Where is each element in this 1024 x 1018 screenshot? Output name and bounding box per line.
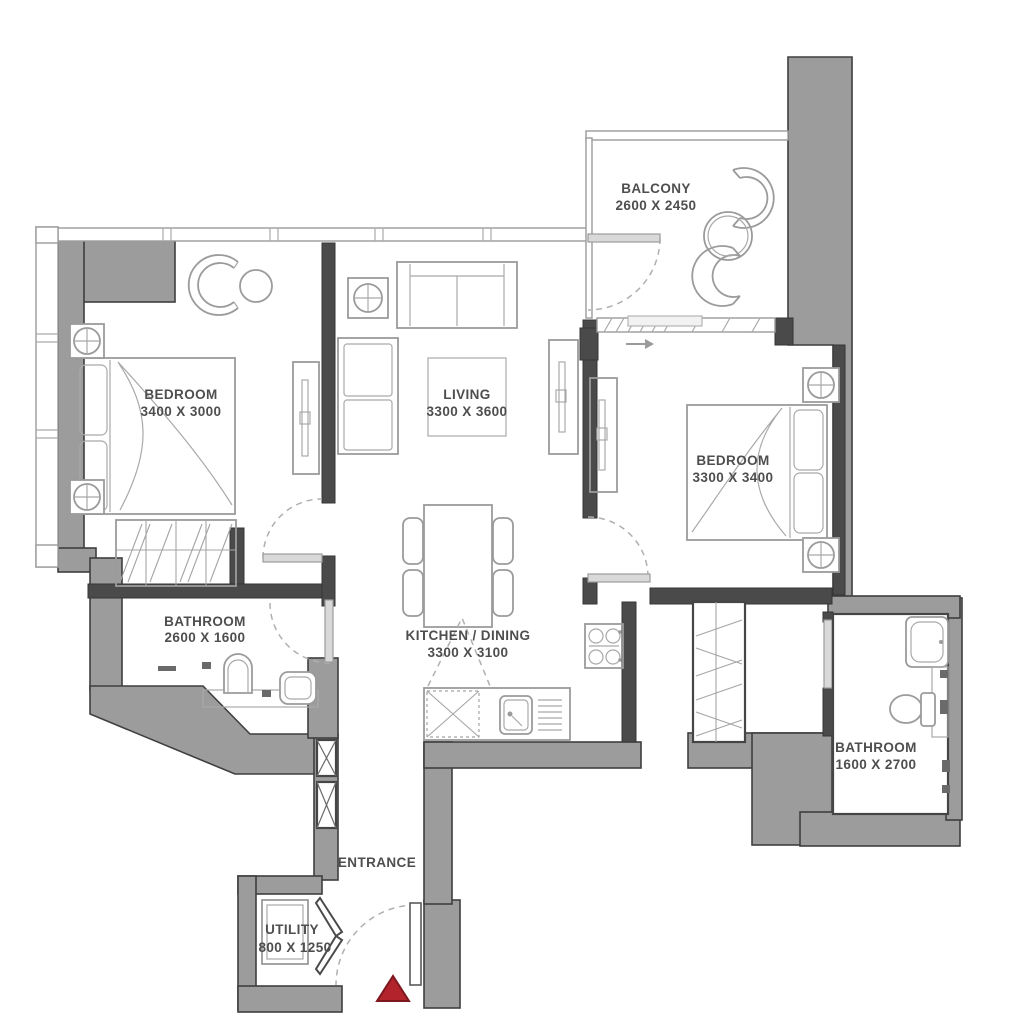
entrance-marker-icon — [377, 976, 409, 1001]
corner-block-ne-living — [580, 328, 598, 360]
bathroom2-door-leaf — [824, 620, 832, 688]
balcony-parapet-left — [586, 138, 592, 318]
bedroom2-door-leaf — [588, 574, 650, 582]
tap — [262, 690, 271, 697]
windows — [36, 131, 788, 567]
entrance-label: ENTRANCE — [338, 855, 416, 870]
dining-chair — [403, 518, 423, 564]
armchair-1 — [189, 255, 238, 315]
balcony-furniture — [692, 168, 774, 306]
balcony-label: BALCONY — [621, 181, 691, 196]
tap — [202, 662, 211, 669]
window-corner-top-left — [36, 227, 58, 243]
kitchen-label: KITCHEN / DINING — [406, 628, 531, 643]
dining-chair — [403, 570, 423, 616]
stove — [585, 624, 623, 668]
left-window-band — [36, 227, 58, 567]
kitchen-dims: 3300 X 3100 — [428, 645, 509, 660]
window-corner-bottom-left — [36, 545, 58, 567]
bathroom1-dims: 2600 X 1600 — [165, 630, 246, 645]
bedroom1-door-leaf — [263, 554, 322, 562]
tap — [942, 785, 950, 793]
bathroom2-dims: 1600 X 2700 — [836, 757, 917, 772]
bedroom1-door-arc — [263, 499, 322, 558]
living-dims: 3300 X 3600 — [427, 404, 508, 419]
drainer — [538, 700, 562, 730]
blanket-fold — [118, 362, 232, 510]
balcony-door-leaf — [588, 234, 660, 242]
bedroom1-east-wall — [322, 243, 335, 503]
bedroom1-label: BEDROOM — [144, 387, 217, 402]
dining-set — [403, 505, 513, 627]
kitchen-bottom-wall — [424, 742, 641, 768]
utility-bifold-door — [316, 898, 342, 974]
bottom-wall — [238, 986, 342, 1012]
living-furniture — [338, 262, 578, 454]
pillow — [794, 410, 823, 470]
tap — [940, 700, 948, 714]
side-table-1 — [240, 270, 272, 302]
service-shafts — [317, 740, 336, 828]
bedroom1-wardrobe — [116, 520, 236, 586]
entrance-hinge-wall — [424, 900, 460, 1008]
towel-rail — [158, 666, 176, 671]
toilet-2 — [890, 695, 922, 723]
bedroom1-south-stub — [230, 528, 244, 590]
balcony-dims: 2600 X 2450 — [616, 198, 697, 213]
dining-chair — [493, 570, 513, 616]
tv-unit-1 — [293, 362, 319, 474]
bathroom2-fixtures — [833, 614, 950, 814]
bedroom1-dims: 3400 X 3000 — [141, 404, 222, 419]
balcony-door-arc — [588, 238, 660, 310]
bathroom1-left-wall — [90, 558, 122, 690]
corridor-closet — [693, 602, 745, 742]
vent-arrow-icon — [626, 339, 654, 349]
utility-dims: 800 X 1250 — [258, 940, 331, 955]
entrance-door-leaf — [410, 903, 421, 985]
balcony-parapet-top — [586, 131, 788, 140]
bedroom2-dims: 3300 X 3400 — [693, 470, 774, 485]
tv-unit-living — [549, 340, 578, 454]
tap — [942, 760, 950, 772]
bedroom1-doorpost — [322, 556, 335, 606]
corner-block-bedroom2 — [775, 318, 793, 345]
dining-chair — [493, 518, 513, 564]
kitchen-east-wall — [622, 602, 636, 742]
top-window-band — [40, 228, 588, 241]
bathroom2-doorpost-bottom — [823, 688, 833, 736]
floor-plan: BALCONY 2600 X 2450 BEDROOM 3400 X 3000 … — [0, 0, 1024, 1018]
living-label: LIVING — [443, 387, 490, 402]
bathroom1-door-leaf — [325, 600, 333, 662]
pillow — [794, 473, 823, 533]
bathroom1-label: BATHROOM — [164, 614, 246, 629]
bedroom2-door-arc — [588, 517, 648, 577]
balcony-sliding-panel — [628, 316, 702, 326]
dining-table — [424, 505, 492, 627]
bedroom2-label: BEDROOM — [696, 453, 769, 468]
floor-plan-drawing: BALCONY 2600 X 2450 BEDROOM 3400 X 3000 … — [0, 0, 1024, 1018]
utility-label: UTILITY — [265, 922, 319, 937]
tap — [940, 670, 948, 678]
bathroom2-label: BATHROOM — [835, 740, 917, 755]
entrance-door-arc — [336, 905, 416, 985]
balcony-table — [704, 212, 752, 260]
bathroom2-bottom-wall — [800, 812, 960, 846]
bathroom1-door-arc — [270, 603, 330, 663]
